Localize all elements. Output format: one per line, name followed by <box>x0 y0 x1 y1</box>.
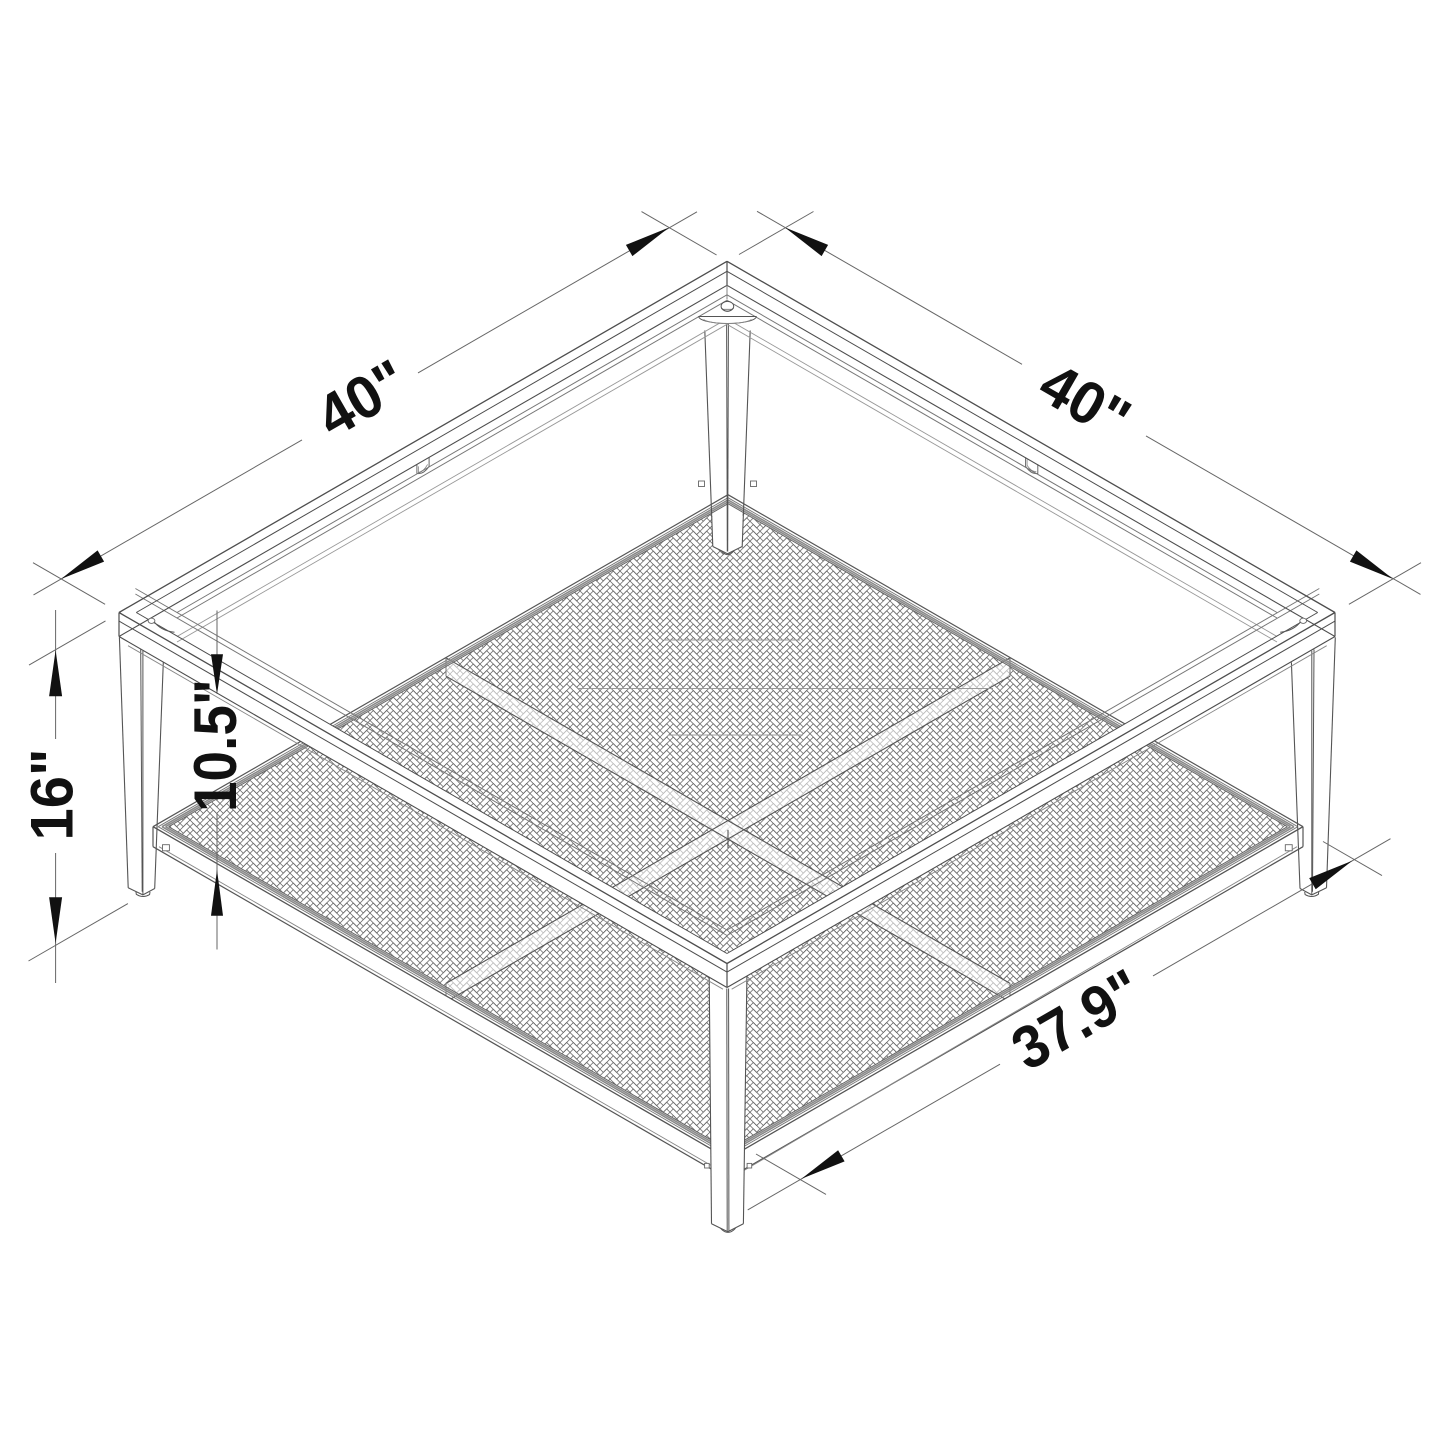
svg-text:16": 16" <box>19 749 86 841</box>
svg-text:10.5": 10.5" <box>182 679 249 812</box>
